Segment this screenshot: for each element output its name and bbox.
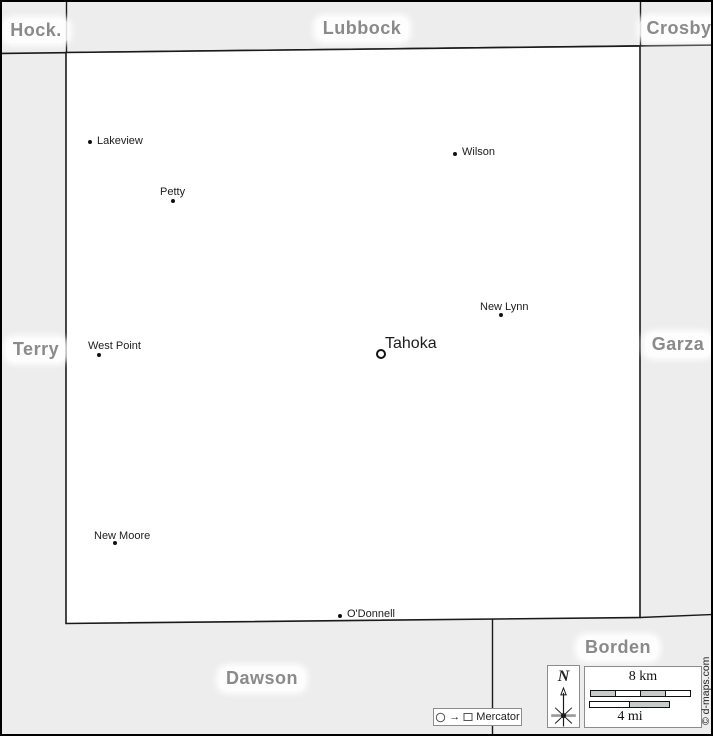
globe-circle-icon xyxy=(435,712,446,723)
projection-box: → Mercator xyxy=(433,708,522,726)
scale-mi-label: 4 mi xyxy=(572,709,688,725)
projection-label: Mercator xyxy=(476,711,519,723)
mi-scale-bar xyxy=(589,701,670,708)
county-label-terry: Terry xyxy=(6,338,66,362)
mi-segment-2 xyxy=(630,702,669,707)
map-canvas: LakeviewPettyWilsonNew LynnWest PointTah… xyxy=(0,0,713,736)
km-segment-2 xyxy=(616,691,641,696)
county-label-hock: Hock. xyxy=(3,19,69,43)
county-label-lubbock: Lubbock xyxy=(316,17,409,41)
flat-map-square-icon xyxy=(463,712,473,722)
scale-bar-box: 8 km 4 mi xyxy=(584,666,702,728)
projection-arrow-icon: → xyxy=(449,711,460,723)
county-label-garza: Garza xyxy=(645,333,712,357)
county-label-borden: Borden xyxy=(578,636,658,660)
county-labels-layer: Hock.LubbockCrosbyTerryGarzaDawsonBorden xyxy=(2,2,711,734)
county-label-crosby: Crosby xyxy=(639,17,713,41)
credit-text: © d-maps.com xyxy=(700,655,712,725)
km-segment-1 xyxy=(591,691,616,696)
scale-km-label: 8 km xyxy=(585,669,701,685)
county-label-dawson: Dawson xyxy=(219,667,305,691)
mi-segment-1 xyxy=(590,702,630,707)
km-scale-bar xyxy=(590,690,691,697)
north-label: N xyxy=(558,668,570,686)
km-segment-4 xyxy=(666,691,690,696)
km-segment-3 xyxy=(641,691,666,696)
